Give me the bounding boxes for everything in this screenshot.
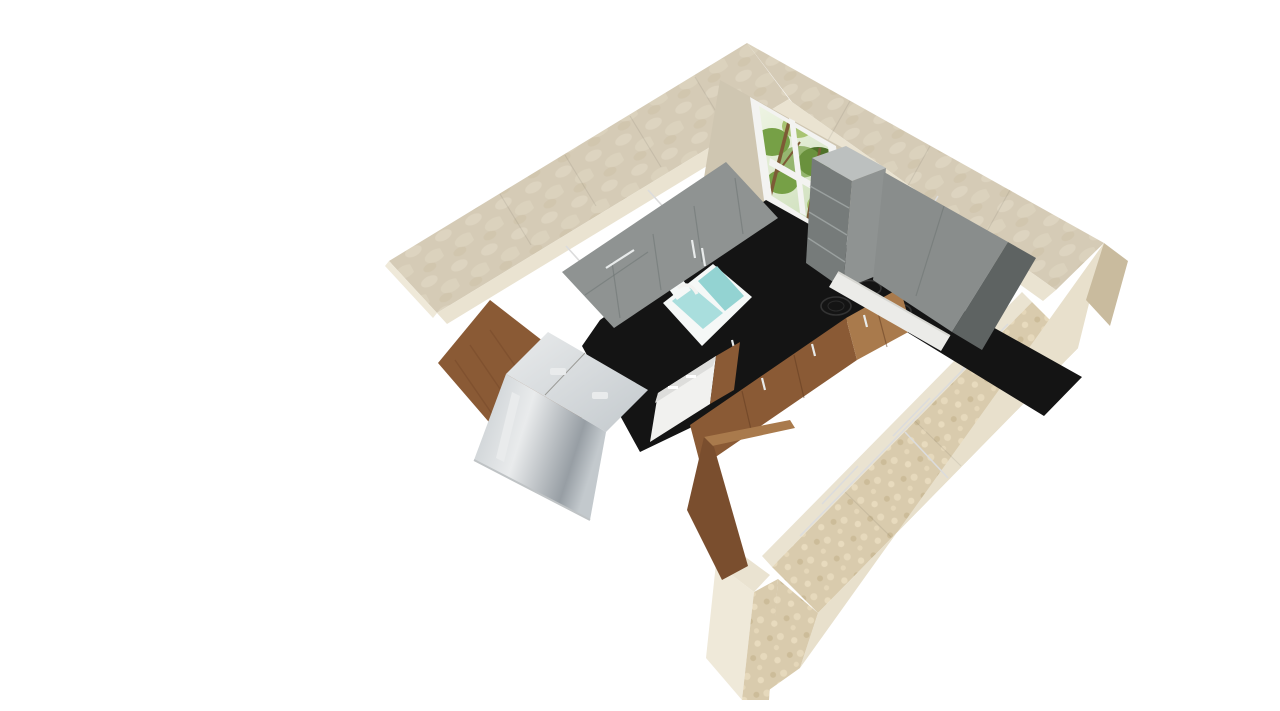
kitchen-3d-render — [0, 0, 1280, 711]
fridge-hinge — [550, 368, 566, 375]
kitchen-3d-viewport[interactable] — [0, 0, 1280, 711]
dishwasher-button — [668, 386, 678, 389]
fridge-hinge — [592, 392, 608, 399]
dishwasher-button — [686, 375, 696, 378]
